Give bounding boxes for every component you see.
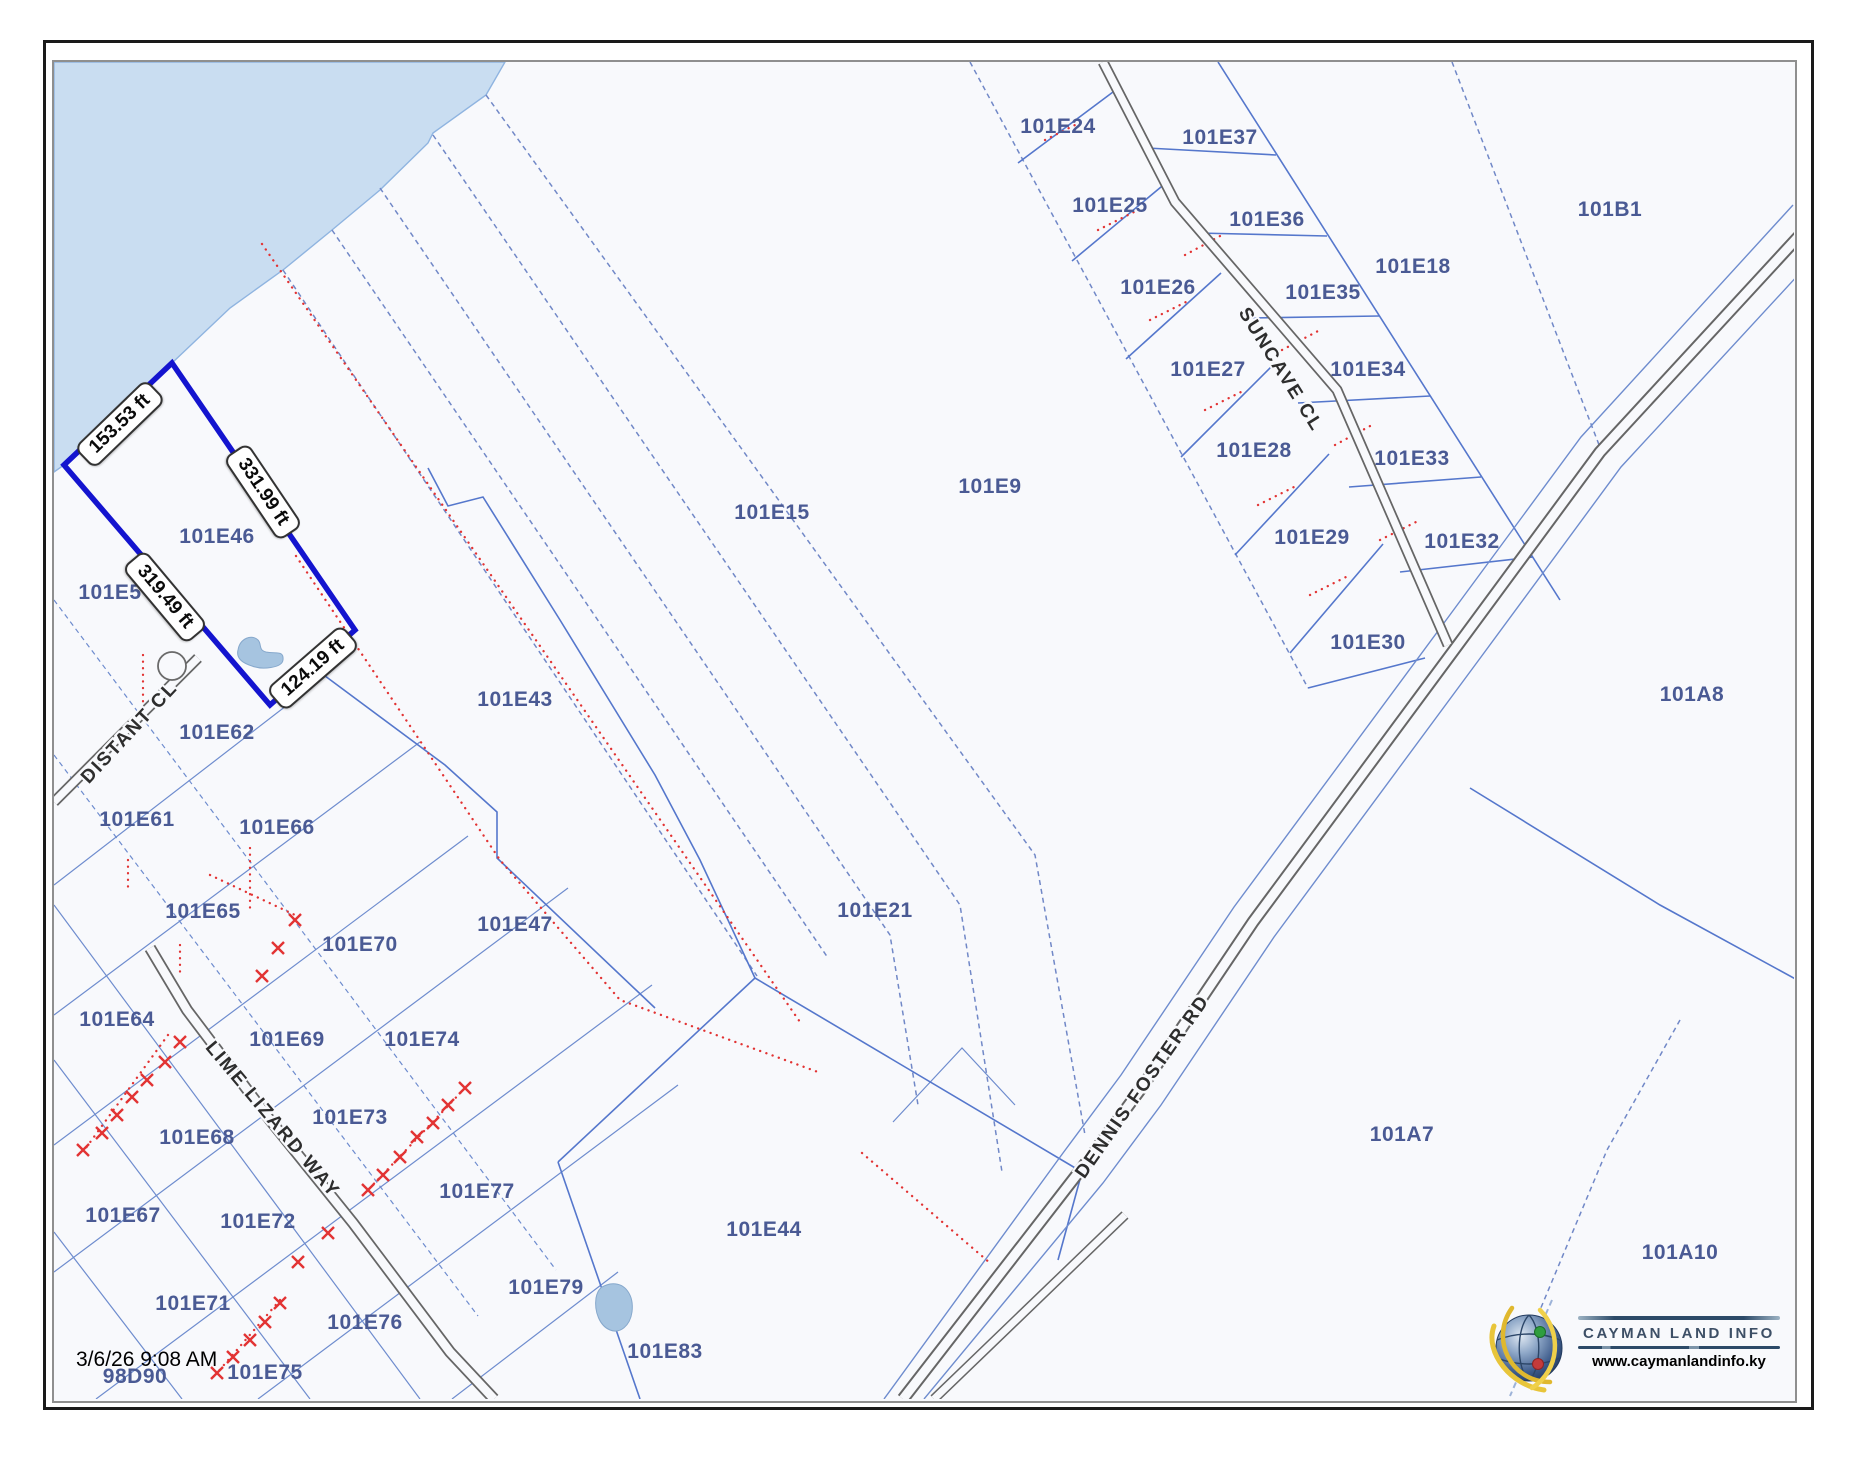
parcel-label-101E37: 101E37 <box>1182 126 1257 150</box>
dimension-label-12419: 124.19 ft <box>265 624 360 712</box>
logo-url: www.caymanlandinfo.ky <box>1578 1353 1780 1370</box>
parcel-label-101E27: 101E27 <box>1170 358 1245 382</box>
parcel-label-101E15: 101E15 <box>734 501 809 525</box>
parcel-label-101E69: 101E69 <box>249 1028 324 1052</box>
parcel-label-101E61: 101E61 <box>99 808 174 832</box>
parcel-label-101E34: 101E34 <box>1330 358 1405 382</box>
parcel-label-101E24: 101E24 <box>1020 115 1095 139</box>
parcel-label-101E79: 101E79 <box>508 1276 583 1300</box>
cayman-land-info-logo: CAYMAN LAND INFO www.caymanlandinfo.ky <box>1482 1298 1794 1399</box>
parcel-label-101E25: 101E25 <box>1072 194 1147 218</box>
map-canvas[interactable]: 101E24101E37101E25101E36101E18101E26101E… <box>54 62 1794 1399</box>
parcel-label-101E26: 101E26 <box>1120 276 1195 300</box>
parcel-label-101A10: 101A10 <box>1642 1241 1719 1265</box>
parcel-label-101E36: 101E36 <box>1229 208 1304 232</box>
parcel-label-101E18: 101E18 <box>1375 255 1450 279</box>
parcel-label-101A7: 101A7 <box>1370 1123 1434 1147</box>
parcel-label-101E28: 101E28 <box>1216 439 1291 463</box>
parcel-label-101E32: 101E32 <box>1424 530 1499 554</box>
dimension-label-15353: 153.53 ft <box>74 378 167 469</box>
parcel-label-101B1: 101B1 <box>1578 198 1642 222</box>
parcel-label-101E77: 101E77 <box>439 1180 514 1204</box>
parcel-label-101E9: 101E9 <box>958 475 1021 499</box>
parcel-label-101E67: 101E67 <box>85 1204 160 1228</box>
parcel-label-101E21: 101E21 <box>837 899 912 923</box>
parcel-label-101E68: 101E68 <box>159 1126 234 1150</box>
road-label-dennis-foster-rd: DENNIS FOSTER RD <box>1071 991 1215 1183</box>
parcel-label-101E43: 101E43 <box>477 688 552 712</box>
parcel-label-101E83: 101E83 <box>627 1340 702 1364</box>
parcel-label-101E33: 101E33 <box>1374 447 1449 471</box>
parcel-label-101E5: 101E5 <box>78 581 141 605</box>
parcel-label-101E71: 101E71 <box>155 1292 230 1316</box>
parcel-label-101E64: 101E64 <box>79 1008 154 1032</box>
parcel-label-101E29: 101E29 <box>1274 526 1349 550</box>
road-label-suncave-cl: SUNCAVE CL <box>1233 304 1327 436</box>
map-label-layer: 101E24101E37101E25101E36101E18101E26101E… <box>54 62 1794 1399</box>
road-label-distant-cl: DISTANT CL <box>77 677 183 788</box>
parcel-label-101E46: 101E46 <box>179 525 254 549</box>
logo-rule-bottom <box>1578 1346 1780 1349</box>
parcel-label-101E47: 101E47 <box>477 913 552 937</box>
parcel-label-101E70: 101E70 <box>322 933 397 957</box>
parcel-label-101E73: 101E73 <box>312 1106 387 1130</box>
parcel-label-101E62: 101E62 <box>179 721 254 745</box>
parcel-label-101E75: 101E75 <box>227 1361 302 1385</box>
parcel-label-101E35: 101E35 <box>1285 281 1360 305</box>
parcel-label-101E65: 101E65 <box>165 900 240 924</box>
logo-rule-top <box>1578 1316 1780 1320</box>
parcel-label-101E44: 101E44 <box>726 1218 801 1242</box>
parcel-label-101E74: 101E74 <box>384 1028 459 1052</box>
parcel-label-101E66: 101E66 <box>239 816 314 840</box>
logo-title: CAYMAN LAND INFO <box>1578 1325 1780 1342</box>
globe-icon <box>1482 1298 1577 1398</box>
parcel-label-101E76: 101E76 <box>327 1311 402 1335</box>
print-timestamp: 3/6/26 9:08 AM <box>76 1348 217 1372</box>
parcel-label-101E72: 101E72 <box>220 1210 295 1234</box>
parcel-label-101A8: 101A8 <box>1660 683 1724 707</box>
parcel-label-101E30: 101E30 <box>1330 631 1405 655</box>
